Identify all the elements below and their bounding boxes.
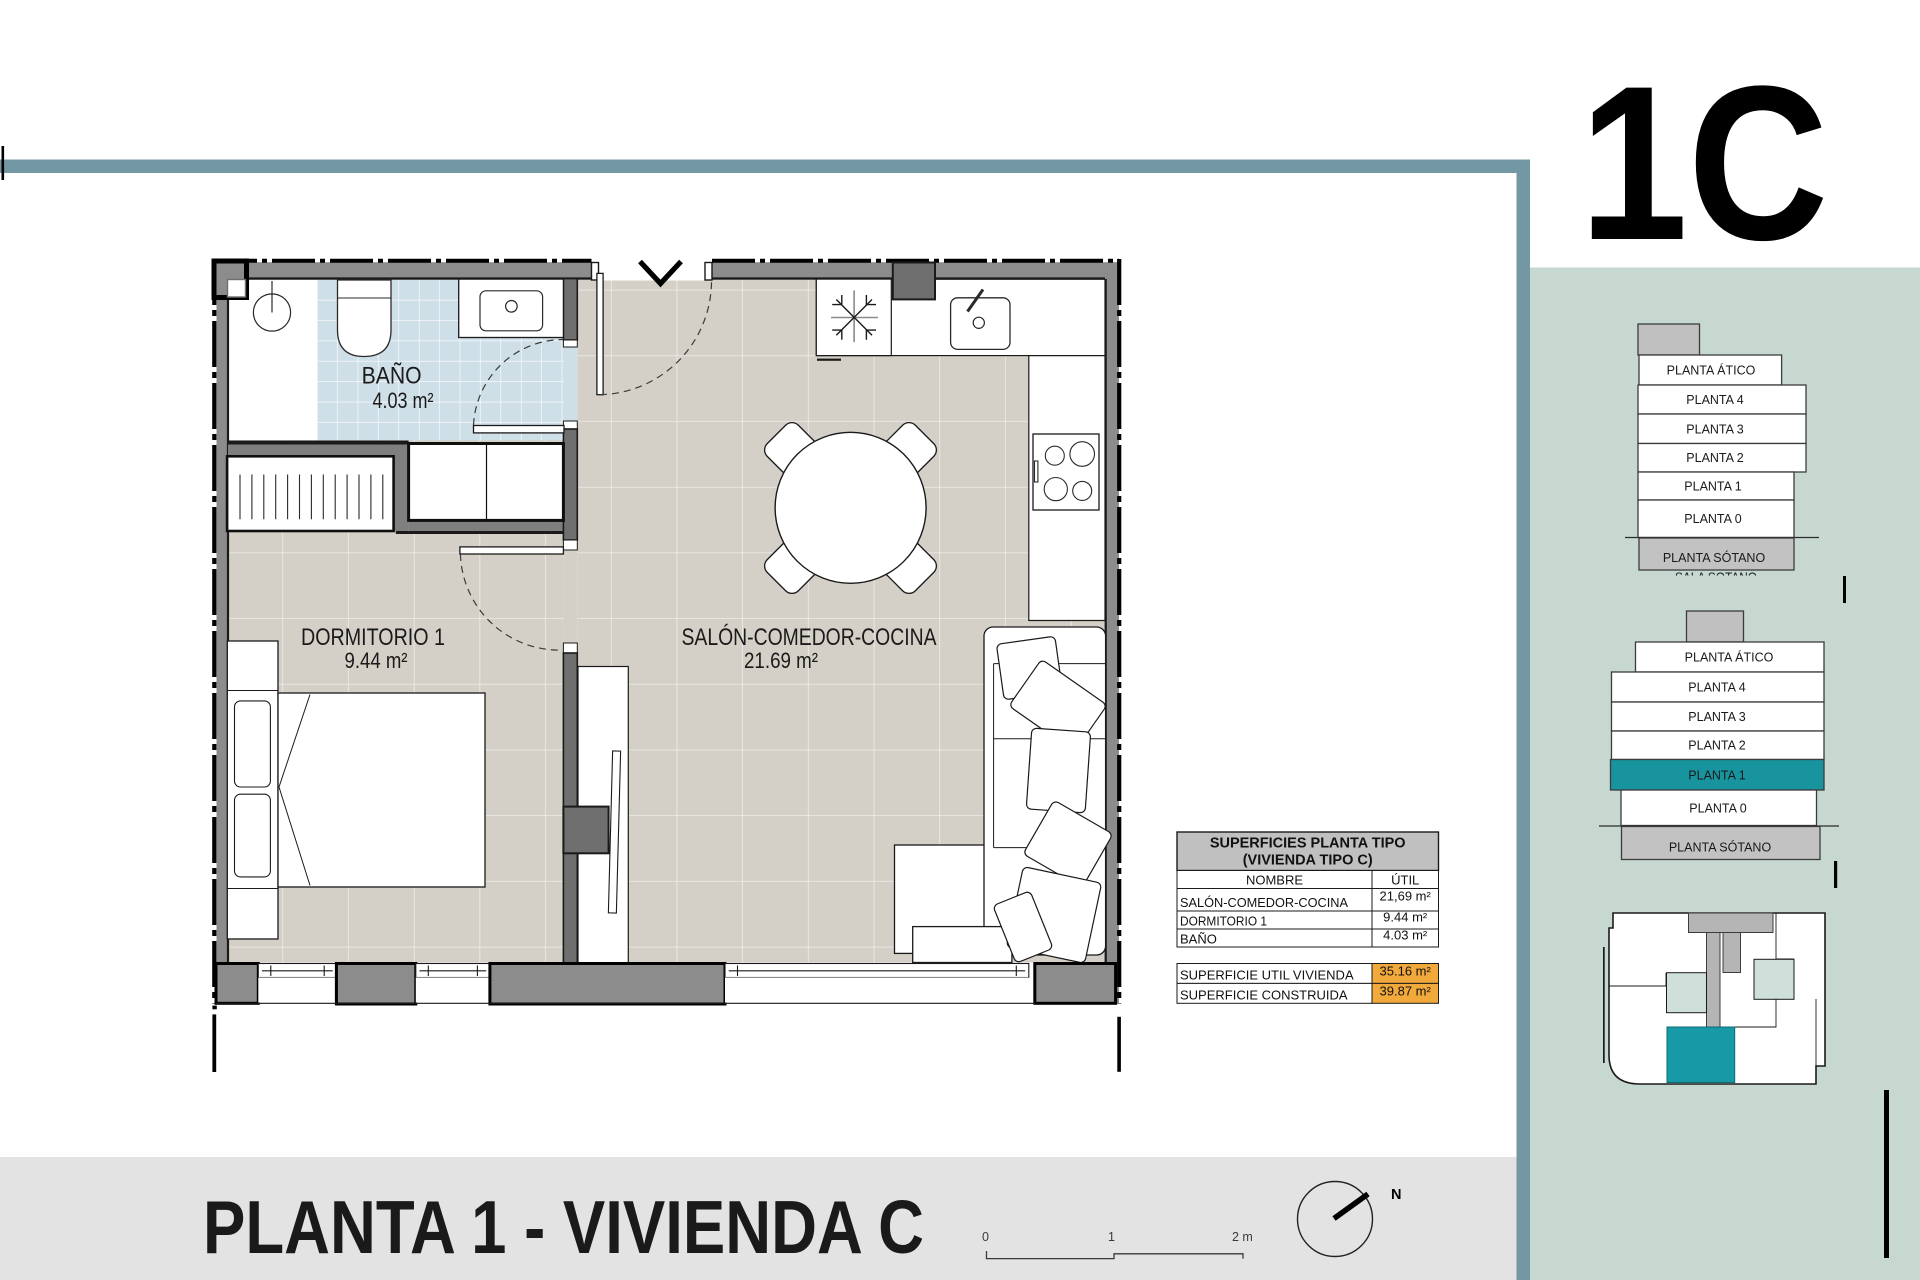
- svg-text:PLANTA ÁTICO: PLANTA ÁTICO: [1685, 650, 1774, 665]
- svg-text:SALÓN-COMEDOR-COCINA: SALÓN-COMEDOR-COCINA: [682, 624, 937, 651]
- svg-text:21,69 m²: 21,69 m²: [1380, 889, 1432, 904]
- svg-text:DORMITORIO 1: DORMITORIO 1: [1180, 914, 1267, 929]
- svg-text:PLANTA 0: PLANTA 0: [1684, 512, 1741, 526]
- svg-text:0: 0: [982, 1230, 989, 1244]
- svg-text:21.69 m²: 21.69 m²: [744, 648, 818, 673]
- svg-text:35.16 m²: 35.16 m²: [1380, 964, 1432, 979]
- svg-text:9.44 m²: 9.44 m²: [1383, 910, 1428, 925]
- svg-text:N: N: [1391, 1187, 1401, 1203]
- svg-text:SUPERFICIES PLANTA TIPO: SUPERFICIES PLANTA TIPO: [1210, 836, 1406, 852]
- svg-text:BAÑO: BAÑO: [362, 363, 422, 390]
- svg-text:9.44 m²: 9.44 m²: [345, 648, 408, 673]
- svg-text:PLANTA 1 - VIVIENDA C: PLANTA 1 - VIVIENDA C: [203, 1185, 924, 1269]
- svg-text:1C: 1C: [1580, 41, 1829, 287]
- svg-text:PLANTA 4: PLANTA 4: [1686, 393, 1743, 407]
- svg-text:PLANTA 2: PLANTA 2: [1688, 739, 1745, 753]
- svg-text:PLANTA 3: PLANTA 3: [1686, 423, 1743, 437]
- svg-text:PLANTA SÓTANO: PLANTA SÓTANO: [1663, 550, 1766, 565]
- svg-text:PLANTA 0: PLANTA 0: [1689, 802, 1746, 816]
- svg-text:NOMBRE: NOMBRE: [1246, 873, 1303, 888]
- svg-text:4.03 m²: 4.03 m²: [1383, 928, 1428, 943]
- svg-text:PLANTA SÓTANO: PLANTA SÓTANO: [1669, 840, 1772, 855]
- svg-text:39.87 m²: 39.87 m²: [1380, 984, 1432, 999]
- svg-text:PLANTA 3: PLANTA 3: [1688, 710, 1745, 724]
- svg-text:PLANTA 1: PLANTA 1: [1688, 769, 1745, 783]
- svg-text:ÚTIL: ÚTIL: [1391, 873, 1419, 888]
- svg-text:4.03 m²: 4.03 m²: [373, 388, 434, 413]
- svg-text:PLANTA 2: PLANTA 2: [1686, 451, 1743, 465]
- svg-text:SALÓN-COMEDOR-COCINA: SALÓN-COMEDOR-COCINA: [1180, 895, 1348, 910]
- svg-text:PLANTA 1: PLANTA 1: [1684, 480, 1741, 494]
- svg-text:PLANTA ÁTICO: PLANTA ÁTICO: [1667, 363, 1756, 378]
- svg-text:SUPERFICIE CONSTRUIDA: SUPERFICIE CONSTRUIDA: [1180, 988, 1348, 1003]
- svg-text:PLANTA 4: PLANTA 4: [1688, 681, 1745, 695]
- svg-text:DORMITORIO 1: DORMITORIO 1: [301, 624, 445, 651]
- svg-text:(VIVIENDA TIPO C): (VIVIENDA TIPO C): [1243, 853, 1373, 869]
- svg-text:BAÑO: BAÑO: [1180, 932, 1217, 947]
- svg-text:SUPERFICIE UTIL VIVIENDA: SUPERFICIE UTIL VIVIENDA: [1180, 968, 1354, 983]
- svg-text:1: 1: [1108, 1230, 1115, 1244]
- svg-text:2 m: 2 m: [1232, 1230, 1253, 1244]
